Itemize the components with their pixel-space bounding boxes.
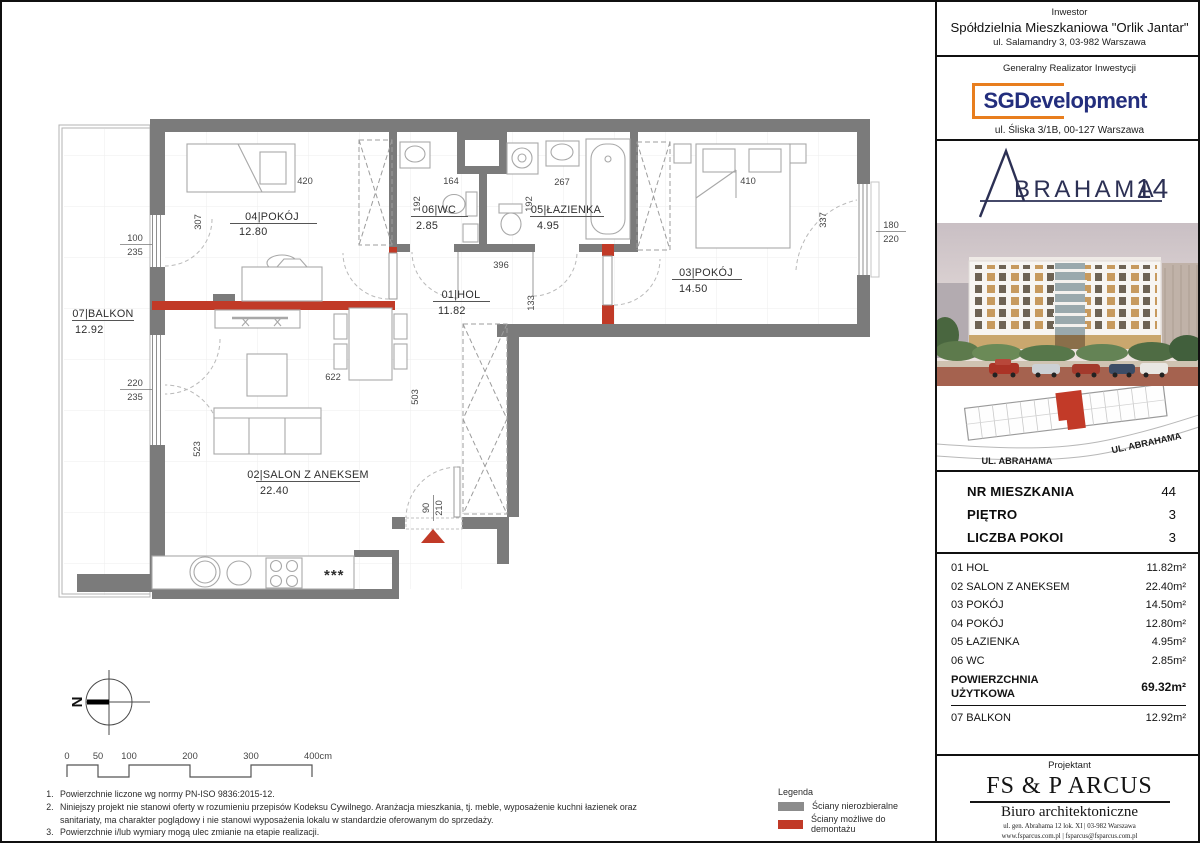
dim-523: 523 [192,441,202,457]
svg-text:100: 100 [127,233,143,243]
svg-text:07|BALKON: 07|BALKON [72,308,133,320]
usable-area-row: POWIERZCHNIA UŻYTKOWA 69.32m² [951,673,1186,701]
compass: N [69,670,150,735]
footnote-3: Powierzchnie i/lub wymiary mogą ulec zmi… [56,826,654,839]
dim-307: 307 [193,214,203,230]
dining-table [334,308,407,380]
investor-box: Inwestor Spółdzielnia Mieszkaniowa "Orli… [937,2,1200,57]
balcony-area: 12.92m² [1146,712,1186,724]
dim-192-wc: 192 [412,196,422,212]
svg-text:02|SALON Z ANEKSEM: 02|SALON Z ANEKSEM [247,469,369,481]
legend-label: Ściany nierozbieralne [812,801,898,811]
scale-bar: 0 50 100 200 300 400cm [64,751,332,777]
investor-name: Spółdzielnia Mieszkaniowa "Orlik Jantar" [937,20,1200,35]
dim-192-laz: 192 [524,196,534,212]
svg-text:400cm: 400cm [304,751,332,761]
compass-north-letter: N [69,697,86,708]
legend: Legenda Ściany nierozbieralne Ściany moż… [778,787,928,837]
floor-plan-drawing: *** 04|POKÓJ 12.80 06|WC 2.85 05|ŁAZIENK… [2,2,933,841]
street-label-left: UL. ABRAHAMA [981,456,1052,466]
svg-text:200: 200 [182,751,198,761]
dim-210: 210 [434,500,444,516]
street-label-right: UL. ABRAHAMA [1111,431,1183,456]
table-row: 05 ŁAZIENKA4.95m² [951,636,1186,648]
svg-text:22.40: 22.40 [260,485,289,497]
siteplan-drawing: UL. ABRAHAMA UL. ABRAHAMA [937,386,1200,470]
unit-number-label: NR MIESZKANIA [967,484,1074,499]
dim-622: 622 [325,372,341,382]
contractor-heading: Generalny Realizator Inwestycji [937,63,1200,74]
floor-row: PIĘTRO 3 [967,507,1176,522]
svg-text:220: 220 [127,378,143,388]
designer-box: Projektant FS & P ARCUS Biuro architekto… [937,756,1200,841]
brand-box: BRAHAMA 14 [937,141,1200,386]
legend-label: Ściany możliwe do demontażu [811,814,928,834]
balcony-row: 07 BALKON 12.92m² [951,712,1186,724]
abrahama-logo: BRAHAMA 14 [937,141,1200,223]
unit-number-row: NR MIESZKANIA 44 [967,484,1176,499]
designer-subtitle: Biuro architektoniczne [937,804,1200,821]
svg-text:4.95: 4.95 [537,220,559,232]
dim-420: 420 [297,176,313,186]
svg-text:04|POKÓJ: 04|POKÓJ [245,210,299,223]
svg-text:14.50: 14.50 [679,283,708,295]
table-row: 01 HOL11.82m² [951,562,1186,574]
abrahama-logo-drawing: BRAHAMA 14 [950,143,1190,221]
designer-contact: www.fsparcus.com.pl | fsparcus@fsparcus.… [937,832,1200,841]
dim-267: 267 [554,177,570,187]
footnote-4: Wyjście na tarasy/loggie/balkony - możli… [56,839,654,843]
contractor-box: Generalny Realizator Inwestycji SGDevelo… [937,57,1200,142]
dim-396: 396 [493,260,509,270]
coffee-table [247,354,287,396]
dim-337: 337 [818,212,828,228]
dim-90: 90 [421,503,431,513]
svg-text:220: 220 [883,234,899,244]
sg-logo-text: SGDevelopment [984,88,1147,114]
floor-label: PIĘTRO [967,507,1017,522]
dim-133: 133 [526,295,536,311]
sgdevelopment-logo: SGDevelopment [972,83,1168,121]
svg-text:12.80: 12.80 [239,226,268,238]
rooms-count-value: 3 [1169,530,1176,545]
table-row: 04 POKÓJ12.80m² [951,618,1186,630]
svg-text:2.85: 2.85 [416,220,438,232]
footnotes: Powierzchnie liczone wg normy PN-ISO 983… [36,788,654,843]
footnote-1: Powierzchnie liczone wg normy PN-ISO 983… [56,788,654,801]
svg-text:0: 0 [64,751,69,761]
table-divider [951,705,1186,706]
balcony-label: 07 BALKON [951,712,1011,724]
svg-text:180: 180 [883,220,899,230]
svg-text:100: 100 [121,751,137,761]
legend-swatch-red [778,820,803,829]
table-row: 06 WC2.85m² [951,655,1186,667]
floor-value: 3 [1169,507,1176,522]
svg-text:11.82: 11.82 [438,305,466,317]
tv-console [215,310,300,328]
legend-item-fixed-walls: Ściany nierozbieralne [778,801,928,811]
investor-heading: Inwestor [937,7,1200,18]
rooms-count-row: LICZBA POKOI 3 [967,530,1176,545]
svg-text:12.92: 12.92 [75,324,104,336]
unit-number-value: 44 [1161,484,1176,499]
dim-410: 410 [740,176,756,186]
legend-swatch-gray [778,802,804,811]
svg-text:01|HOL: 01|HOL [442,289,481,301]
bed-room04 [187,144,295,192]
rooms-table: 01 HOL11.82m² 02 SALON Z ANEKSEM22.40m² … [937,554,1200,755]
usable-area-label: POWIERZCHNIA UŻYTKOWA [951,673,1039,701]
table-row: 02 SALON Z ANEKSEM22.40m² [951,581,1186,593]
dim-window3: 180 220 [876,220,906,244]
siteplan-box: UL. ABRAHAMA UL. ABRAHAMA [937,386,1200,472]
designer-heading: Projektant [937,760,1200,771]
svg-text:235: 235 [127,392,143,402]
designer-divider [970,801,1170,803]
svg-text:03|POKÓJ: 03|POKÓJ [679,266,733,279]
installation-shaft [457,132,507,174]
footnote-2: Niniejszy projekt nie stanowi oferty w r… [56,801,654,827]
legend-title: Legenda [778,787,928,797]
investor-address: ul. Salamandry 3, 03-982 Warszawa [937,37,1200,48]
kitchen-stars: *** [324,567,345,584]
floor-plan: *** 04|POKÓJ 12.80 06|WC 2.85 05|ŁAZIENK… [2,2,933,841]
designer-name: FS & P ARCUS [937,773,1200,800]
rooms-count-label: LICZBA POKOI [967,530,1063,545]
sidebar: Inwestor Spółdzielnia Mieszkaniowa "Orli… [935,2,1200,841]
usable-area-value: 69.32m² [1141,680,1186,694]
svg-text:235: 235 [127,247,143,257]
floorplan-sheet: *** 04|POKÓJ 12.80 06|WC 2.85 05|ŁAZIENK… [0,0,1200,843]
sofa [214,408,321,454]
designer-address: ul. gen. Abrahama 12 lok. XI | 03-982 Wa… [937,822,1200,831]
contractor-address: ul. Śliska 3/1B, 00-127 Warszawa [937,125,1200,136]
svg-text:300: 300 [243,751,259,761]
table-row: 03 POKÓJ14.50m² [951,599,1186,611]
dim-503: 503 [410,389,420,405]
svg-text:05|ŁAZIENKA: 05|ŁAZIENKA [531,204,602,216]
logo-number: 14 [1136,173,1169,204]
building-render-image [937,223,1200,386]
dim-164: 164 [443,176,459,186]
unit-info-box: NR MIESZKANIA 44 PIĘTRO 3 LICZBA POKOI 3 [937,472,1200,554]
legend-item-removable-walls: Ściany możliwe do demontażu [778,814,928,834]
svg-text:06|WC: 06|WC [422,204,456,216]
svg-text:50: 50 [93,751,103,761]
